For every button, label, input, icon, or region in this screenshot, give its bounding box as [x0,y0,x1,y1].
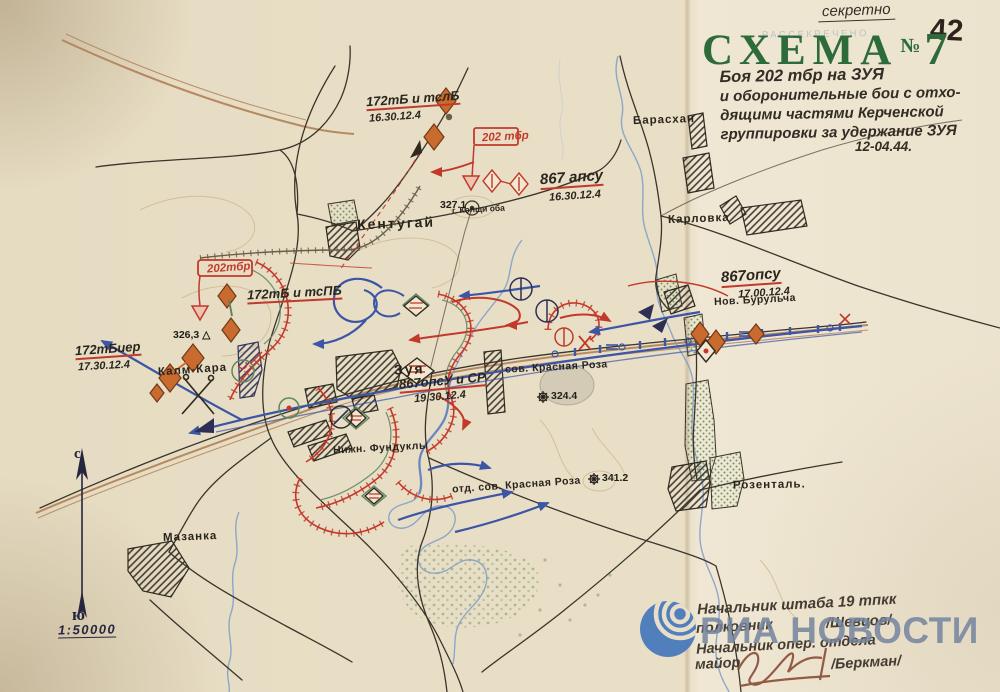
blue-arrows [102,279,862,532]
road-arrow-icon [410,140,422,158]
map-sheet: 172тБ и тслБ16.30.12.4202 тбр867 апсу16.… [0,0,1000,692]
title-number-sign: № [900,35,920,57]
secrecy-note: секретно [818,1,895,21]
compass-arrow-icon [60,440,110,640]
map-subtitle: Боя 202 тбр на ЗУЯ и оборонительные бои … [719,64,961,144]
ria-novosti-watermark: РИА НОВОСТИ [700,610,979,652]
ria-novosti-globe-icon [636,598,700,662]
spgun-diamond-icons [483,170,528,195]
map-scale: 1:50000 [58,621,116,638]
orchard-areas [328,200,744,637]
navy-arrow-icon [194,418,214,433]
map-date: 12-04.44. [855,139,912,154]
destroyed-crossing-icon [182,375,214,415]
